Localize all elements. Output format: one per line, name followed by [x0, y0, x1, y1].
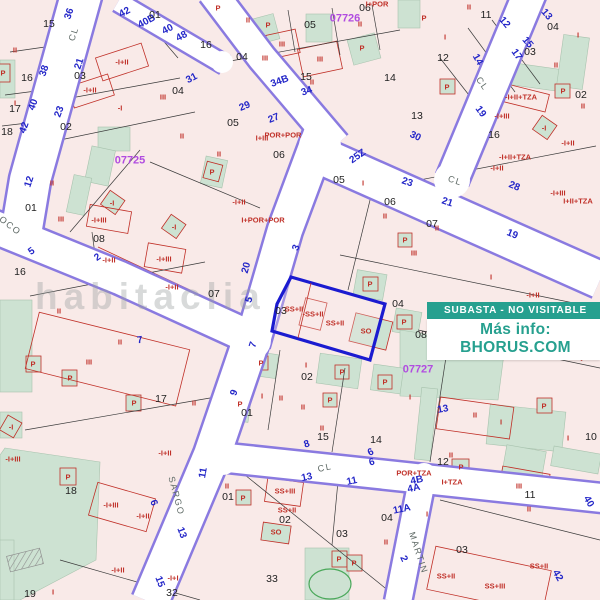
parcel-number-36: 08 — [415, 330, 427, 341]
parcel-number-46: 03 — [456, 545, 468, 556]
parcel-number-5: 03 — [74, 71, 86, 82]
parcel-number-43: 02 — [279, 515, 291, 526]
building-label-38: -I+III — [156, 255, 171, 263]
building-label-27: -I+III — [494, 112, 509, 120]
building-label-17: I+POR — [366, 0, 389, 8]
building-label-59: P — [367, 280, 372, 288]
building-label-8: P — [215, 4, 220, 12]
building-label-11: III — [279, 40, 285, 48]
building-label-73: III — [86, 358, 92, 366]
building-label-23: P — [444, 83, 449, 91]
parcel-number-24: 16 — [14, 267, 26, 278]
parcel-number-39: 18 — [65, 486, 77, 497]
building-label-102: III — [516, 482, 522, 490]
building-label-13: III — [317, 55, 323, 63]
building-label-51: P — [402, 236, 407, 244]
building-label-87: II — [225, 482, 229, 490]
building-label-21: I — [444, 33, 446, 41]
parcel-number-16: 12 — [437, 53, 449, 64]
parcel-number-7: 04 — [172, 86, 184, 97]
parcel-number-20: 02 — [575, 90, 587, 101]
building-label-84: -I+II — [111, 566, 124, 574]
auction-status-banner: SUBASTA - NO VISITABLE — [427, 302, 600, 319]
building-label-90: SS+II — [278, 506, 297, 514]
building-label-61: I — [305, 361, 307, 369]
building-label-60: P — [401, 318, 406, 326]
parcel-number-0: 15 — [43, 19, 55, 30]
parcel-number-47: 11 — [525, 490, 536, 501]
building-label-78: -I — [9, 423, 14, 431]
building-label-74: P — [30, 360, 35, 368]
building-label-46: I — [362, 179, 364, 187]
building-label-19: I+III — [256, 134, 269, 142]
auction-info-link[interactable]: Más info: BHORUS.COM — [427, 319, 600, 360]
parcel-number-25: 06 — [273, 150, 285, 161]
building-label-85: -I+I — [167, 574, 178, 582]
building-label-93: II — [384, 538, 388, 546]
building-label-4: -I+II — [83, 86, 96, 94]
parcel-number-49: 33 — [266, 574, 278, 585]
building-label-53: -I+II — [526, 291, 539, 299]
building-label-100: I+TZA — [441, 478, 462, 486]
building-label-71: II — [57, 307, 61, 315]
building-label-56: -SS+II — [302, 310, 323, 318]
parcel-number-13: 14 — [384, 73, 396, 84]
building-label-68: P — [327, 396, 332, 404]
building-label-69: II — [320, 424, 324, 432]
building-label-50: III — [411, 249, 417, 257]
parcel-number-38: 17 — [155, 394, 167, 405]
cadastral-map[interactable]: {"" /* keep parser-safe */ } {"" } — [0, 0, 600, 600]
building-label-83: -I+II — [136, 512, 149, 520]
building-label-105: I — [409, 393, 411, 401]
building-label-89: SS+III — [275, 487, 296, 495]
building-label-36: -I — [110, 199, 115, 207]
building-label-57: SS+II — [326, 319, 345, 327]
building-label-31: -I+II — [561, 139, 574, 147]
building-label-76: P — [131, 399, 136, 407]
building-label-79: -I+II — [158, 449, 171, 457]
parcel-number-42: 01 — [222, 492, 234, 503]
building-label-34: II — [50, 179, 54, 187]
building-label-42: II — [217, 150, 221, 158]
building-label-3: -I+II — [115, 58, 128, 66]
building-label-47: II — [383, 212, 387, 220]
parcel-number-26: 05 — [333, 175, 345, 186]
building-label-45: I+POR+POR — [241, 216, 284, 224]
parcel-number-48: 12 — [437, 457, 449, 468]
parcel-number-8: 16 — [200, 40, 212, 51]
building-label-25: II — [554, 61, 558, 69]
building-label-7: II — [180, 132, 184, 140]
building-label-52: I — [490, 273, 492, 281]
parcel-number-17: 13 — [411, 111, 423, 122]
building-label-75: P — [67, 374, 72, 382]
district-code-2: 07727 — [403, 365, 434, 376]
building-label-111: I — [567, 434, 569, 442]
building-label-29: P — [560, 87, 565, 95]
building-label-10: P — [265, 21, 270, 29]
parcel-number-28: 07 — [208, 289, 220, 300]
parcel-number-23: 08 — [93, 234, 105, 245]
district-code-1: 07726 — [330, 14, 361, 25]
building-label-77: II — [192, 399, 196, 407]
parcel-number-40: 19 — [24, 589, 36, 600]
parcel-number-41: 32 — [166, 588, 178, 599]
parcel-number-45: 04 — [381, 513, 393, 524]
building-label-64: P — [382, 378, 387, 386]
building-label-66: II — [279, 394, 283, 402]
parcel-number-34: 15 — [317, 432, 329, 443]
building-label-70: P — [237, 400, 242, 408]
building-label-12: III — [262, 54, 268, 62]
building-label-22: P — [421, 14, 426, 22]
building-label-99: II — [449, 451, 453, 459]
building-label-49: I+II+TZA — [563, 197, 593, 205]
parcel-number-10: 05 — [304, 20, 316, 31]
building-label-96: SS+II — [437, 572, 456, 580]
building-label-62: P — [258, 359, 263, 367]
building-label-101: POR+TZA — [396, 469, 431, 477]
parcel-number-35: 14 — [370, 435, 382, 446]
building-label-41: -I+II — [165, 283, 178, 291]
building-label-37: -I+III — [91, 216, 106, 224]
building-label-35: III — [58, 215, 64, 223]
parcel-number-18: 04 — [547, 22, 559, 33]
building-label-0: II — [13, 46, 17, 54]
building-label-94: P — [336, 555, 341, 563]
parcel-number-14: 05 — [227, 118, 239, 129]
building-label-80: P — [65, 473, 70, 481]
parcel-number-37: 10 — [585, 432, 597, 443]
building-label-107: I — [500, 418, 502, 426]
building-label-40: -I — [172, 223, 177, 231]
district-code-0: 07725 — [115, 156, 146, 167]
building-label-97: SS+III — [485, 582, 506, 590]
street-number-51: 13 — [437, 404, 450, 416]
building-label-32: -I+II+TZA — [499, 153, 531, 161]
building-label-103: II — [527, 505, 531, 513]
building-label-26: -I+II+TZA — [505, 93, 537, 101]
parcel-number-15: 11 — [481, 10, 492, 21]
street-number-37: 11 — [198, 467, 210, 479]
building-label-98: SS+II — [530, 562, 549, 570]
building-label-20: II — [467, 3, 471, 11]
building-label-106: II — [473, 411, 477, 419]
building-label-58: SO — [361, 327, 372, 335]
building-label-63: P — [339, 368, 344, 376]
building-label-9: II — [246, 16, 250, 24]
building-label-5: III — [160, 93, 166, 101]
pool — [309, 569, 351, 599]
building-label-2: I — [14, 99, 16, 107]
building-label-54: II — [435, 224, 439, 232]
building-label-65: I — [261, 392, 263, 400]
building-label-1: P — [0, 69, 5, 77]
parcel-number-4: 18 — [1, 127, 13, 138]
building-label-15: II — [310, 78, 314, 86]
building-label-91: SO — [271, 528, 282, 536]
building-label-92: I — [426, 510, 428, 518]
building-label-18: POR+POR — [265, 131, 302, 139]
building-label-43: P — [209, 168, 214, 176]
building-label-28: -I — [542, 124, 547, 132]
building-label-72: II — [118, 338, 122, 346]
parcel-number-31: 04 — [392, 299, 404, 310]
building-label-82: -I+III — [103, 501, 118, 509]
parcel-number-32: 02 — [301, 372, 313, 383]
parcel-number-33: 01 — [241, 408, 253, 419]
building-label-6: -I — [118, 104, 123, 112]
building-label-33: -I+II — [490, 164, 503, 172]
street-number-50: 7 — [137, 336, 144, 347]
parcel-number-2: 16 — [21, 73, 33, 84]
building-label-86: I — [52, 588, 54, 596]
auction-badge[interactable]: SUBASTA - NO VISITABLE Más info: BHORUS.… — [427, 302, 600, 360]
building-label-39: -I+II — [102, 256, 115, 264]
building-label-30: II — [581, 102, 585, 110]
building-label-81: -I+III — [5, 455, 20, 463]
street-number-39: 11 — [346, 476, 358, 488]
building-label-55: SS+II — [285, 305, 304, 313]
building-label-110: P — [541, 402, 546, 410]
building-label-104: P — [458, 463, 463, 471]
building-label-95: P — [351, 559, 356, 567]
building-label-24: I — [577, 31, 579, 39]
parcel-number-19: 03 — [524, 47, 536, 58]
parcel-number-1: 01 — [149, 10, 161, 21]
building-label-67: II — [301, 403, 305, 411]
parcel-number-44: 03 — [336, 529, 348, 540]
parcel-number-9: 04 — [236, 52, 248, 63]
parcel-number-6: 02 — [60, 122, 72, 133]
building-label-88: P — [240, 494, 245, 502]
parcel-number-27: 06 — [384, 197, 396, 208]
building-label-14: P — [359, 44, 364, 52]
parcel-number-21: 16 — [488, 130, 500, 141]
building-label-44: -I+II — [232, 198, 245, 206]
parcel-number-22: 01 — [25, 203, 37, 214]
